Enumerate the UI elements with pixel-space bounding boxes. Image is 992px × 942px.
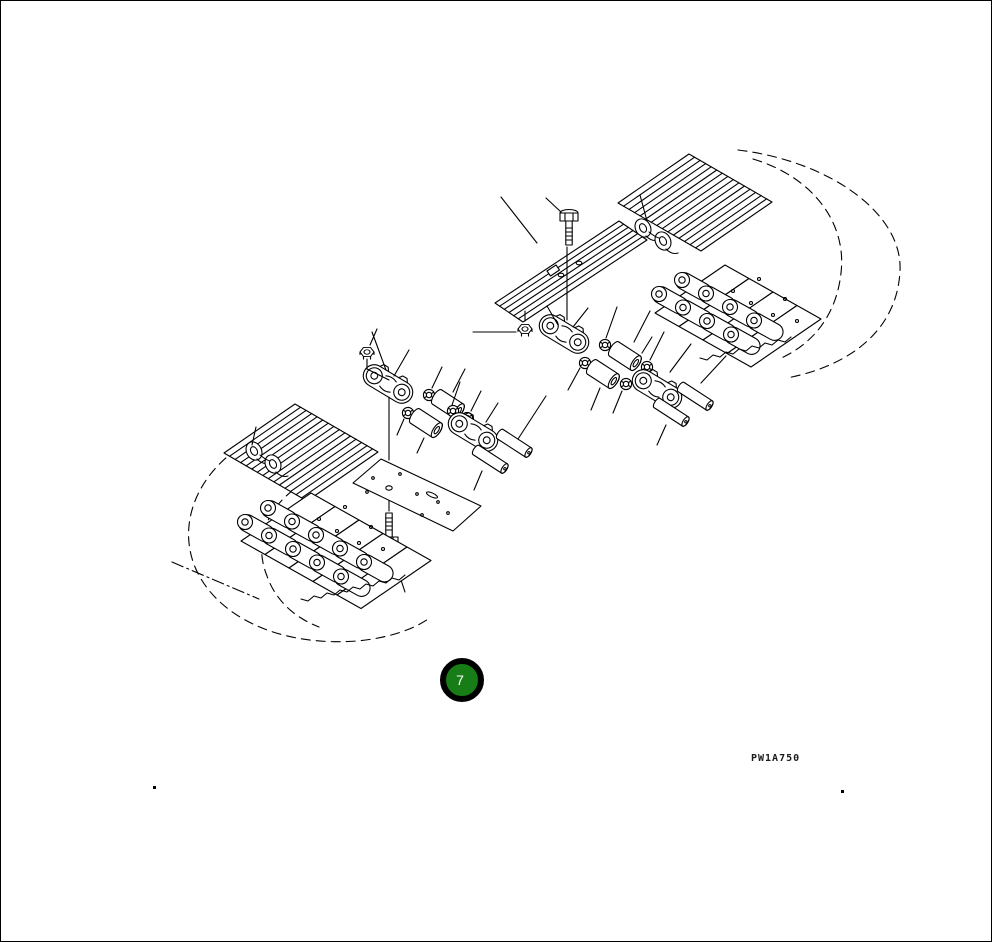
track-link-chain-lower-left: [236, 493, 431, 609]
master-link: [535, 308, 594, 358]
track-assembly-upper-right: [618, 150, 900, 378]
bushing: [606, 340, 643, 372]
track-pin: [495, 428, 534, 458]
registration-dot-right: [841, 790, 844, 793]
shoe-nut: [360, 347, 374, 359]
track-link-chain-upper-right: [642, 265, 821, 367]
shoe-bolt-upper: [560, 210, 578, 246]
callout-balloon-7[interactable]: 7: [440, 658, 484, 702]
seal-ring: [620, 378, 631, 389]
exploded-diagram-svg: [1, 1, 992, 942]
callout-number: 7: [456, 673, 464, 687]
drawing-code: PW1A750: [751, 753, 800, 764]
parts-diagram-page: 7 PW1A750: [0, 0, 992, 942]
registration-dot-left: [153, 786, 156, 789]
shoe-nut: [518, 324, 532, 336]
seal-ring: [599, 339, 610, 350]
track-shoe-plate-inner-face: [353, 459, 481, 531]
